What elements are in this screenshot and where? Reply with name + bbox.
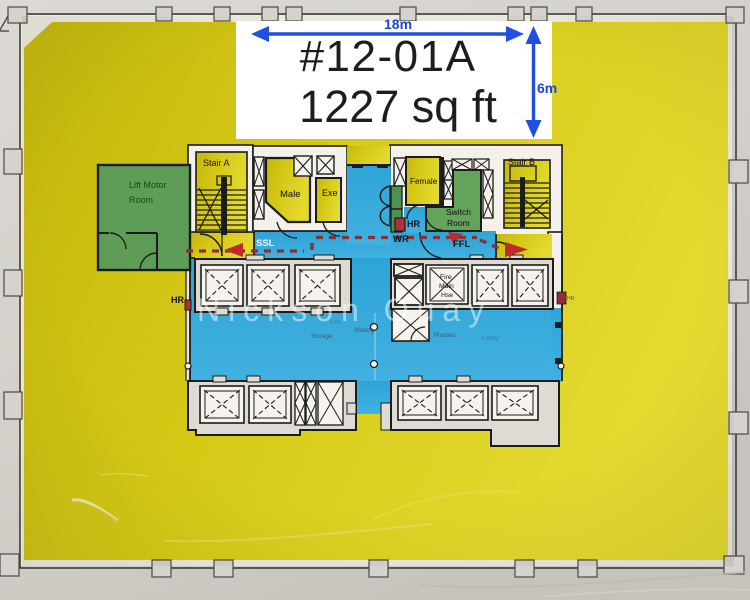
svg-text:18m: 18m [384, 16, 412, 32]
svg-text:#12-01A: #12-01A [300, 32, 477, 81]
svg-text:6m: 6m [537, 80, 557, 96]
svg-text:1227 sq ft: 1227 sq ft [299, 81, 497, 132]
